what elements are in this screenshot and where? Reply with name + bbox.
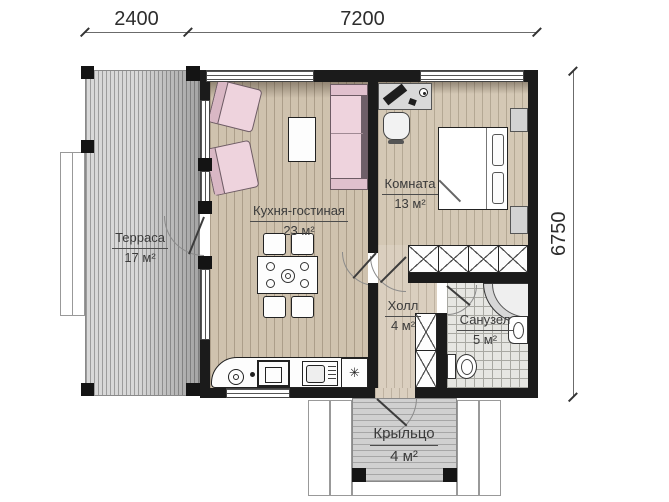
porch-area: 4 м²: [354, 446, 454, 467]
right-dimension-line: [573, 71, 574, 397]
plate: [300, 262, 309, 271]
glazing-mullion: [198, 201, 212, 214]
sofa-back: [361, 85, 367, 189]
sofa-seam: [331, 133, 363, 134]
dining-chair: [291, 296, 314, 318]
wardrobe-cell: [469, 246, 499, 272]
wall-living-bedroom: [368, 82, 378, 253]
desk-chair-base: [388, 140, 404, 144]
pillow: [492, 134, 504, 166]
drying-rack: [328, 366, 336, 382]
kitchen-counter: ✳: [211, 357, 368, 388]
terrace-post: [186, 66, 200, 81]
terrace-name: Терраса: [112, 230, 168, 249]
terrace-post: [81, 140, 94, 153]
bedroom-label: Комната 13 м²: [369, 176, 451, 213]
wardrobe-cell: [409, 246, 439, 272]
nightstand: [510, 206, 528, 234]
bed-linen-seam: [486, 128, 487, 209]
terrace-step: [72, 152, 85, 316]
glazing-mullion: [198, 256, 212, 269]
sofa-armrest: [331, 85, 367, 96]
toilet-bowl-inner: [461, 359, 473, 375]
desk-lamp: [419, 88, 428, 97]
hall-label: Холл 4 м²: [374, 298, 432, 335]
wardrobe-cell: [416, 351, 436, 387]
sink-basin: [306, 365, 325, 383]
armchair: [205, 140, 260, 197]
sofa-armrest: [331, 178, 367, 189]
keyboard: [383, 84, 407, 106]
serving-bowl: [281, 269, 295, 283]
porch-post: [443, 468, 457, 482]
coffee-table: [288, 117, 316, 162]
glazing-terrace: [200, 269, 210, 340]
dining-table: [257, 256, 318, 294]
plate: [266, 279, 275, 288]
kitchen-sink-round: [228, 369, 244, 385]
kitchen-living-area: 23 м²: [234, 222, 364, 240]
stove-door: [265, 367, 282, 383]
terrace-label: Терраса 17 м²: [100, 230, 180, 267]
porch-label: Крыльцо 4 м²: [354, 424, 454, 466]
bathroom-label: Санузел 5 м²: [448, 312, 522, 349]
washing-machine: ✳: [341, 358, 368, 388]
hall-area: 4 м²: [374, 317, 432, 335]
wall-right: [528, 70, 538, 398]
wardrobe-cell: [439, 246, 469, 272]
wall-hall-bathroom: [437, 313, 447, 388]
porch-name: Крыльцо: [370, 424, 437, 446]
dimension-terrace-width: 2400: [85, 8, 188, 31]
toilet-bowl: [456, 354, 477, 379]
sink-drain: [233, 374, 239, 380]
dining-chair: [263, 296, 286, 318]
plate: [300, 279, 309, 288]
stove: [257, 360, 290, 387]
desk: [378, 83, 432, 110]
wall-left-segment: [200, 340, 210, 388]
pillow: [492, 172, 504, 204]
porch-step: [479, 400, 501, 496]
washer-symbol-icon: ✳: [342, 365, 367, 381]
glazing-terrace: [200, 100, 210, 160]
window-bedroom-top: [420, 70, 524, 82]
porch-step: [330, 400, 352, 496]
top-dimension-line: [85, 32, 537, 33]
window-living-top: [206, 70, 314, 82]
desk-chair: [383, 112, 410, 140]
terrace-post: [81, 66, 94, 79]
dimension-house-width: 7200: [188, 8, 537, 31]
toilet-tank: [447, 354, 456, 379]
kitchen-living-name: Кухня-гостиная: [250, 203, 348, 222]
wardrobe-cell: [499, 246, 527, 272]
bathroom-name: Санузел: [457, 312, 514, 331]
terrace-area: 17 м²: [100, 249, 180, 267]
nightstand: [510, 108, 528, 132]
porch-step: [308, 400, 330, 496]
faucet: [250, 372, 255, 377]
porch-step: [457, 400, 479, 496]
serving-bowl-inner: [285, 273, 291, 279]
terrace-post: [186, 383, 200, 396]
window-kitchen-bottom: [226, 388, 290, 398]
bedroom-name: Комната: [382, 176, 439, 195]
desk-item: [408, 98, 417, 106]
plate: [266, 262, 275, 271]
sofa: [330, 84, 368, 190]
bedroom-area: 13 м²: [369, 195, 451, 213]
porch-post: [352, 468, 366, 482]
kitchen-sink-unit: [302, 361, 338, 386]
entry-door-opening: [375, 388, 415, 398]
desk-lamp-dot: [423, 92, 426, 95]
wall-bedroom-bathroom: [408, 273, 528, 283]
glazing-terrace: [200, 171, 210, 202]
wardrobe-bedroom: [408, 245, 528, 273]
porch-step-bottom: [352, 482, 457, 496]
floor-plan: 2400 7200 6750: [0, 0, 669, 502]
bathroom-area: 5 м²: [448, 331, 522, 349]
hall-name: Холл: [385, 298, 422, 317]
glazing-mullion: [198, 158, 212, 171]
dimension-house-depth: 6750: [548, 149, 570, 319]
terrace-post: [81, 383, 94, 396]
kitchen-living-label: Кухня-гостиная 23 м²: [234, 203, 364, 240]
